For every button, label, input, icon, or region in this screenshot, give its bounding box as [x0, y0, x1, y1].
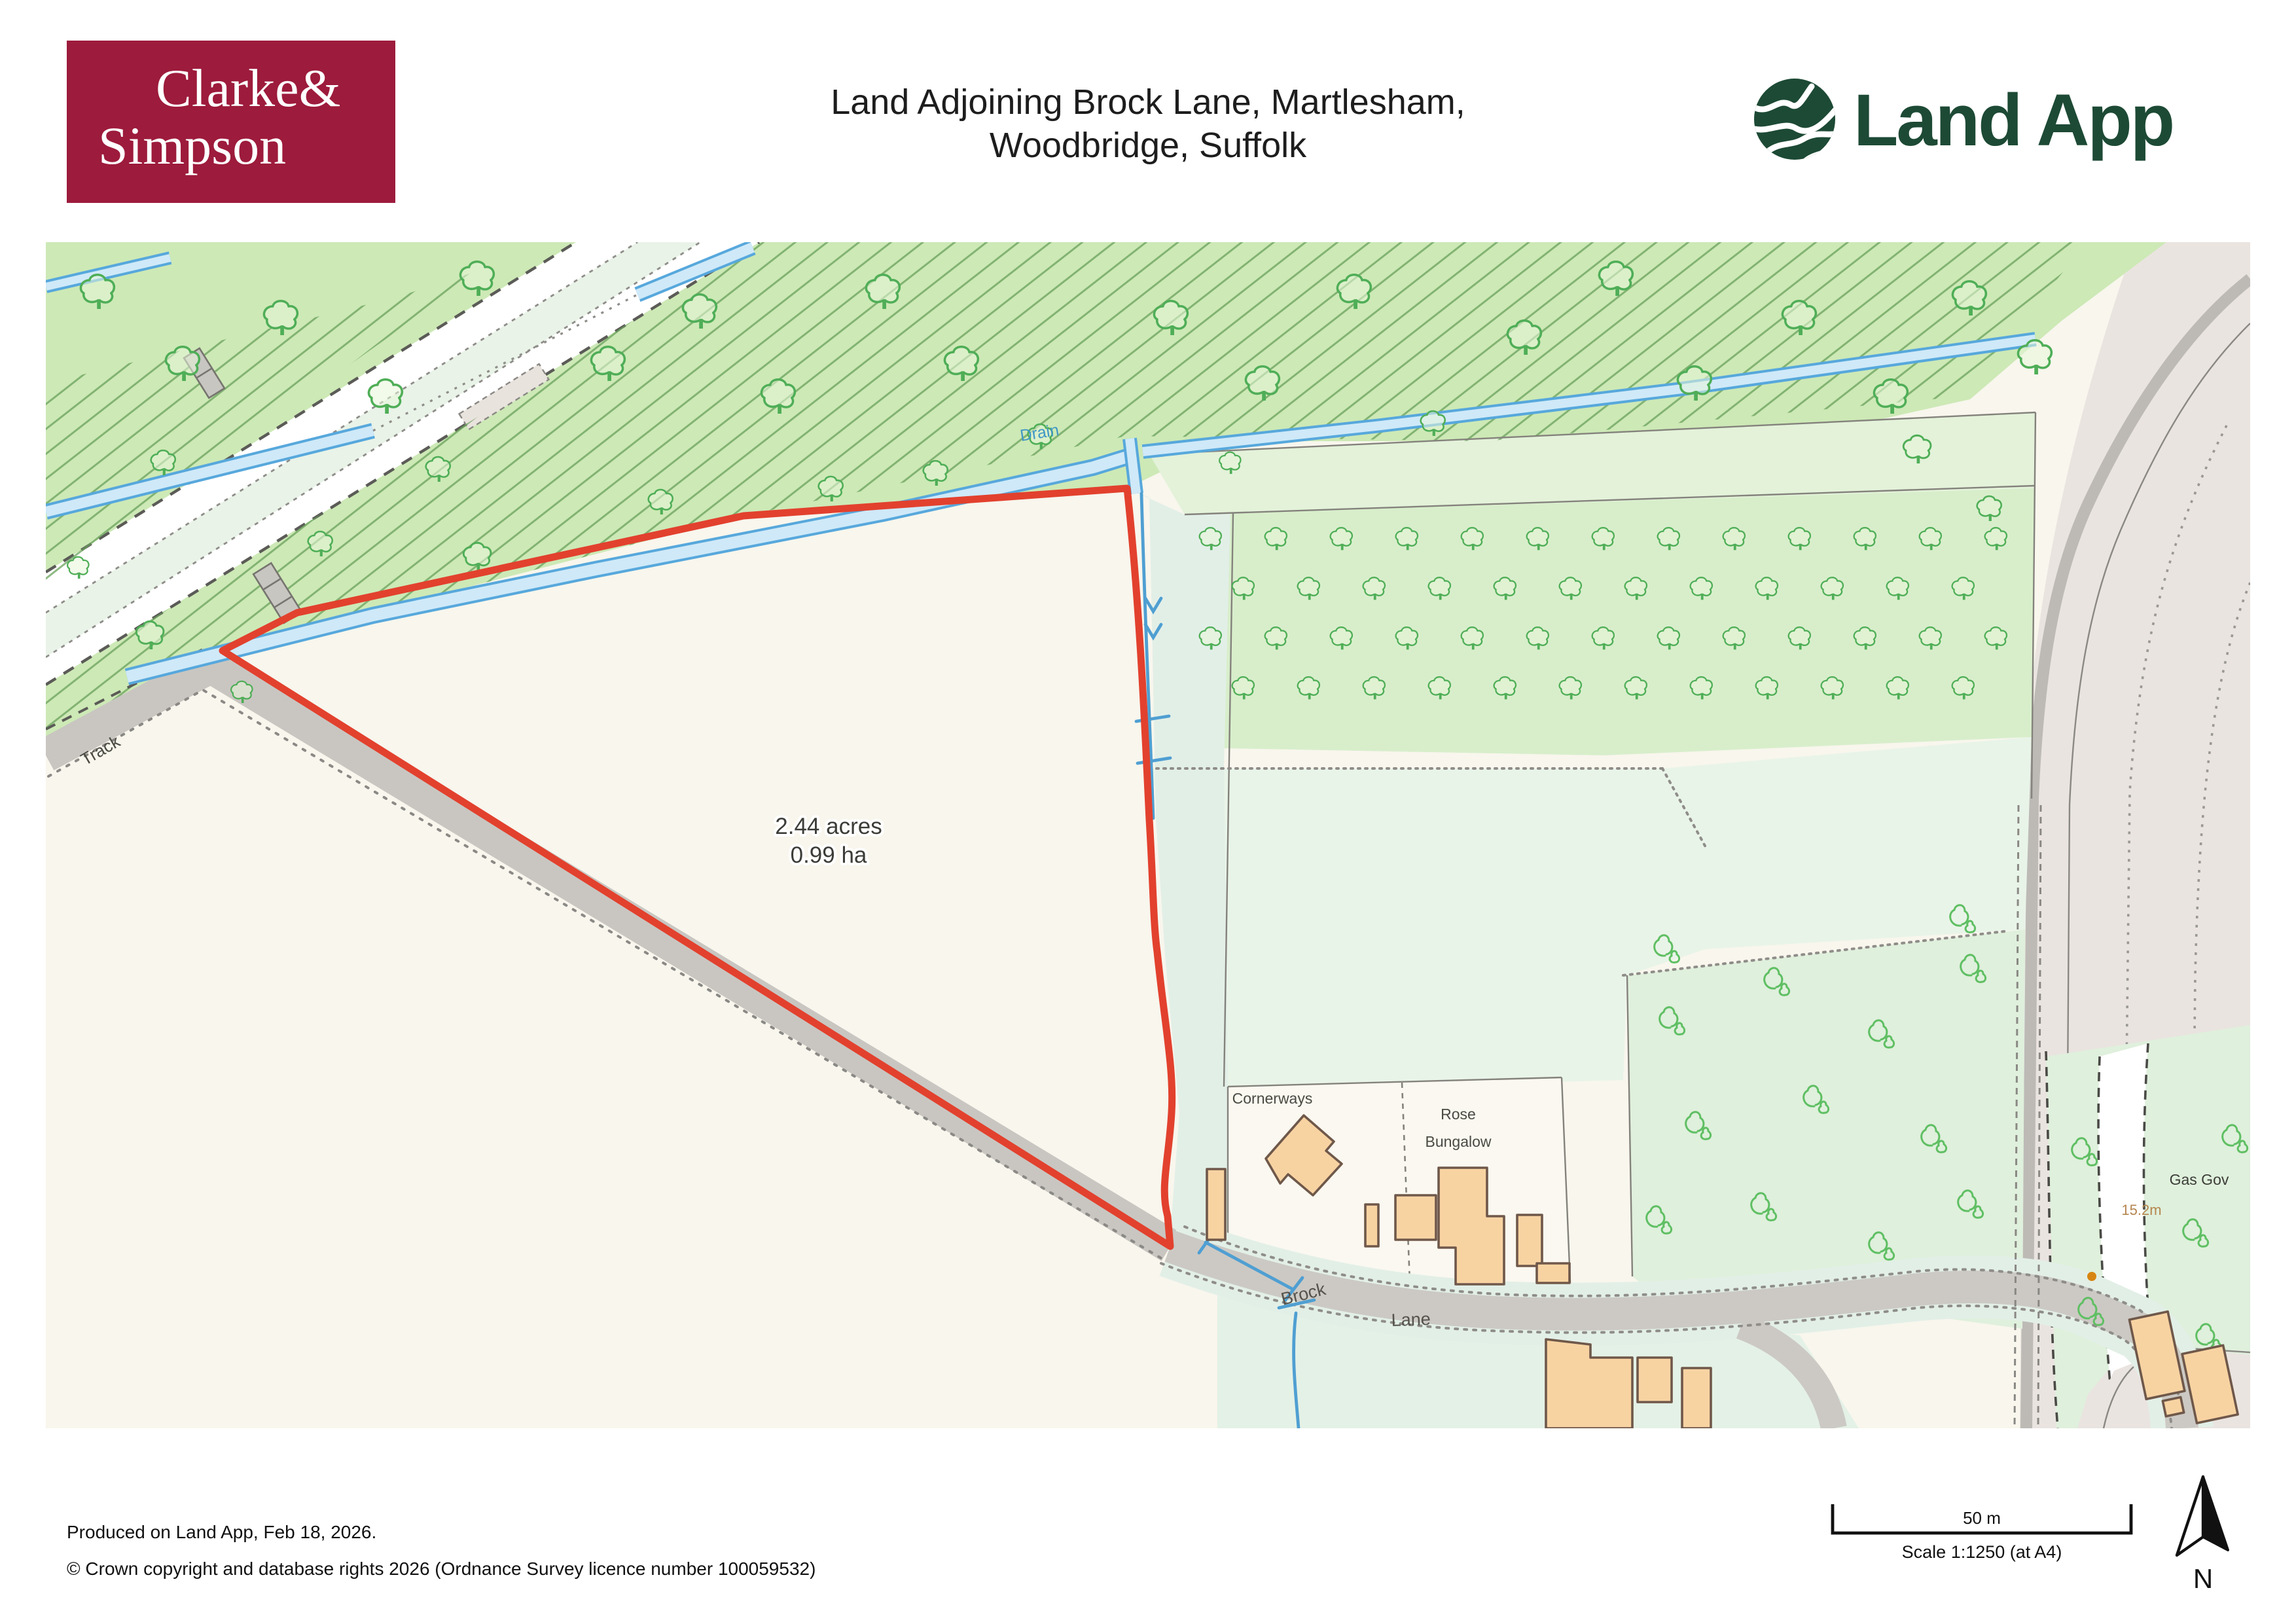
land-app-globe-icon: [1751, 76, 1838, 162]
scale-ratio-label: Scale 1:1250 (at A4): [1830, 1542, 2134, 1562]
north-indicator: N: [2162, 1474, 2244, 1596]
area-label-line2: 0.99 ha: [791, 842, 867, 868]
north-arrow-icon: [2166, 1474, 2240, 1561]
scale-bar: 50 m: [1830, 1500, 2134, 1543]
copyright-note: © Crown copyright and database rights 20…: [67, 1558, 816, 1579]
scale-bar-value: 50 m: [1963, 1508, 2001, 1528]
area-label-line1: 2.44 acres: [775, 814, 882, 839]
north-label: N: [2162, 1564, 2244, 1596]
lane-label: Lane: [1391, 1309, 1431, 1330]
gas-gov-label: Gas Gov: [2170, 1171, 2229, 1188]
cornerways-label: Cornerways: [1232, 1090, 1313, 1107]
page: Clarke& Simpson Land Adjoining Brock Lan…: [0, 0, 2296, 1624]
land-app-logo: Land App: [1751, 76, 2173, 162]
map-canvas: Track Drain 2.44 acres 0.99 ha Cornerway…: [46, 242, 2250, 1428]
spot-height-label: 15.2m: [2121, 1202, 2161, 1218]
land-app-wordmark: Land App: [1854, 77, 2173, 162]
produced-note: Produced on Land App, Feb 18, 2026.: [67, 1521, 376, 1542]
rose-label-line2: Bungalow: [1425, 1133, 1491, 1150]
pale-field-east: [1662, 737, 2032, 949]
spot-marker: [2087, 1272, 2096, 1281]
pale-field: [1149, 768, 1706, 1091]
rose-label-line1: Rose: [1441, 1106, 1476, 1123]
orchard-field: [1185, 488, 2036, 755]
